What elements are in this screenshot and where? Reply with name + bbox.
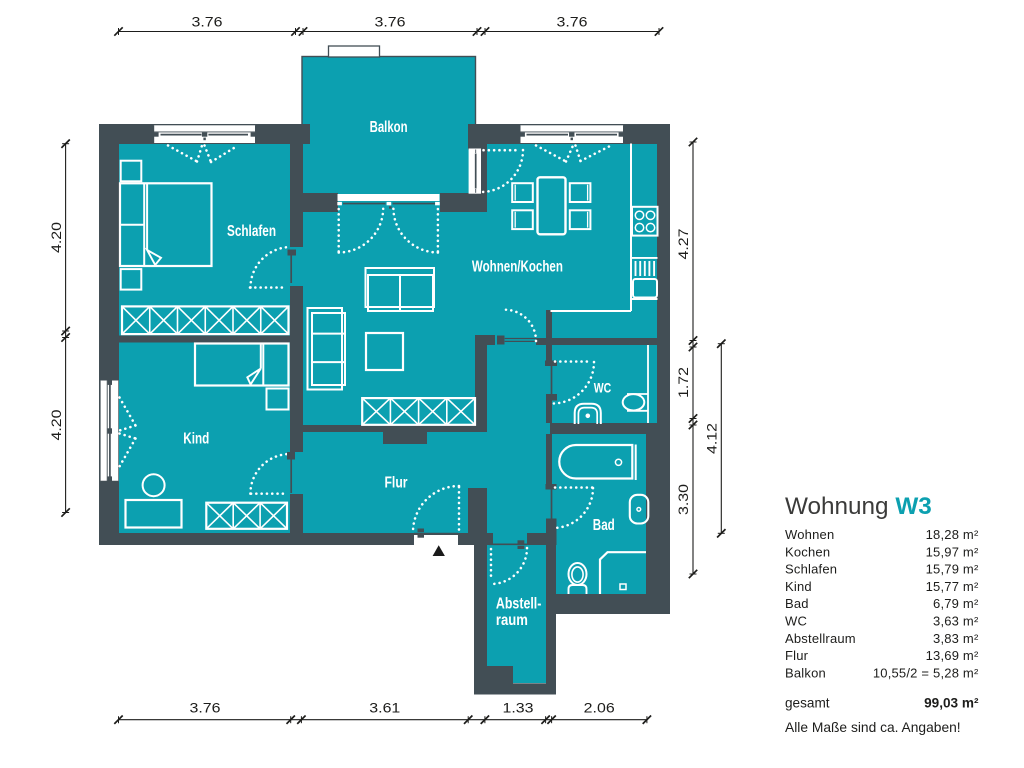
svg-text:Abstellraum: Abstellraum xyxy=(785,631,856,646)
svg-text:Abstell-: Abstell- xyxy=(496,596,542,613)
svg-text:Schlafen: Schlafen xyxy=(227,223,276,240)
svg-text:2.06: 2.06 xyxy=(584,701,615,716)
svg-text:10,55/2 = 5,28 m²: 10,55/2 = 5,28 m² xyxy=(873,665,979,680)
svg-text:15,97 m²: 15,97 m² xyxy=(926,544,979,559)
svg-text:Wohnen/Kochen: Wohnen/Kochen xyxy=(472,259,563,276)
svg-text:Bad: Bad xyxy=(593,517,615,534)
svg-text:Schlafen: Schlafen xyxy=(785,562,837,577)
svg-text:Wohnen: Wohnen xyxy=(785,527,834,542)
svg-text:Kind: Kind xyxy=(785,579,812,594)
svg-text:WC: WC xyxy=(785,614,807,629)
svg-text:Kind: Kind xyxy=(183,430,209,447)
svg-text:4.27: 4.27 xyxy=(676,229,691,260)
svg-text:Balkon: Balkon xyxy=(785,665,826,680)
svg-text:1.33: 1.33 xyxy=(503,701,534,716)
svg-text:Bad: Bad xyxy=(785,596,809,611)
svg-text:3.76: 3.76 xyxy=(375,15,406,30)
svg-text:99,03 m²: 99,03 m² xyxy=(924,695,979,710)
svg-text:18,28 m²: 18,28 m² xyxy=(926,527,979,542)
svg-text:gesamt: gesamt xyxy=(785,695,830,710)
svg-text:6,79 m²: 6,79 m² xyxy=(933,596,979,611)
svg-text:Alle Maße sind ca. Angaben!: Alle Maße sind ca. Angaben! xyxy=(785,720,961,735)
svg-text:4.20: 4.20 xyxy=(49,409,64,440)
svg-text:3,83 m²: 3,83 m² xyxy=(933,631,979,646)
svg-text:3,63 m²: 3,63 m² xyxy=(933,614,979,629)
svg-text:15,79 m²: 15,79 m² xyxy=(926,562,979,577)
svg-text:Flur: Flur xyxy=(385,475,408,492)
svg-text:3.76: 3.76 xyxy=(192,15,223,30)
svg-text:Flur: Flur xyxy=(785,648,809,663)
svg-text:4.12: 4.12 xyxy=(704,423,719,454)
svg-text:Wohnung W3: Wohnung W3 xyxy=(785,493,932,520)
svg-text:Kochen: Kochen xyxy=(785,544,830,559)
svg-text:1.72: 1.72 xyxy=(676,367,691,398)
svg-text:4.20: 4.20 xyxy=(49,222,64,253)
svg-text:3.61: 3.61 xyxy=(369,701,400,716)
svg-text:Balkon: Balkon xyxy=(370,119,408,136)
svg-text:WC: WC xyxy=(594,381,612,396)
svg-text:3.76: 3.76 xyxy=(557,15,588,30)
svg-text:15,77 m²: 15,77 m² xyxy=(926,579,979,594)
svg-text:3.76: 3.76 xyxy=(190,701,221,716)
svg-text:3.30: 3.30 xyxy=(676,484,691,515)
svg-text:raum: raum xyxy=(496,612,528,629)
svg-text:13,69 m²: 13,69 m² xyxy=(926,648,979,663)
